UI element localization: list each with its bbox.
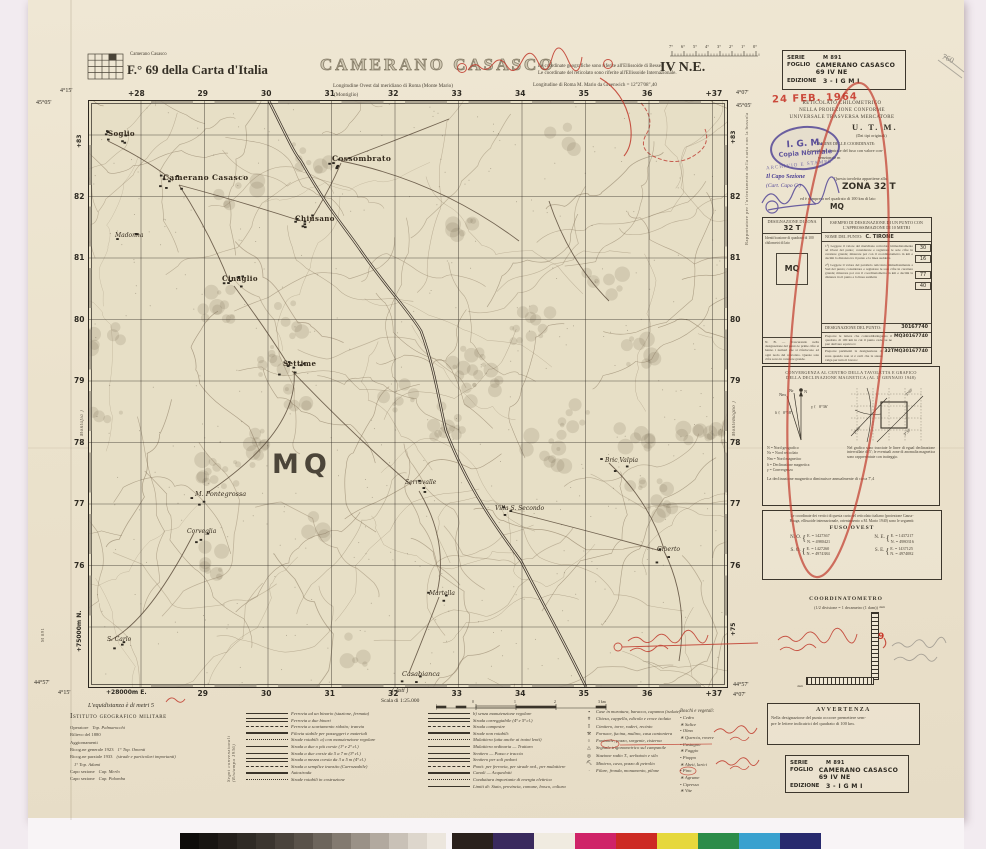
edge-sheet-code: M 891 xyxy=(40,590,45,642)
dam-label-2: dam xyxy=(797,684,803,688)
legend-c-row: ○Fontanile, pozzo, sorgente, cisterna xyxy=(584,738,676,743)
graystep-patch xyxy=(237,833,256,849)
svg-text:3 km: 3 km xyxy=(598,700,606,704)
legend-symbol xyxy=(246,732,288,734)
grid-number-right: 81 xyxy=(730,253,740,262)
legend-c-row: ✝Chiesa, cappella, edicola e croce isola… xyxy=(584,716,676,722)
grid-number-right: 82 xyxy=(730,192,740,201)
protractor-note-rotated: Rapportatore per l'orientamento della ca… xyxy=(744,110,749,245)
fuso-no-e: E. = 1427367 xyxy=(807,533,830,538)
utm-line3: UNIVERSALE TRASVERSA MERCATORE xyxy=(782,115,902,122)
legend-b-row: Sentiero — Passo e traccia xyxy=(428,751,578,756)
grid-number-left: +83 xyxy=(76,135,83,148)
mq-code: MQ xyxy=(830,202,844,211)
legend-symbol xyxy=(428,753,470,754)
legend-symbol: ⛏ xyxy=(584,760,594,766)
corner-bl-lat: 44°57' xyxy=(34,680,49,686)
fuso-so-label: S. O. xyxy=(791,548,801,555)
asti-direction-label: ( Asti ) xyxy=(392,688,408,694)
northing-km: 77 xyxy=(915,271,931,279)
grid-number-left: 82 xyxy=(74,192,84,201)
legend-b-row: Conduttura importante di energia elettri… xyxy=(428,777,578,782)
svg-text:N: N xyxy=(804,389,808,394)
legend-b-row: Strada carreggiabile (4ª e 5ª cl.) xyxy=(428,718,578,723)
designation-table: DESIGNAZIONE DI ZONA 32 T Identificazion… xyxy=(762,217,932,364)
legend-symbol xyxy=(246,766,288,767)
town-label: Serravalle xyxy=(405,479,436,486)
equidistance-note: L'equidistanza è di metri 5 xyxy=(88,702,154,709)
legend-symbol xyxy=(428,786,470,787)
legend-a-row: Autostrada xyxy=(246,770,424,775)
scale-label: Scala di 1:25.000 xyxy=(381,698,419,704)
tree-item: • Olmo xyxy=(680,728,750,735)
legend-symbol xyxy=(428,779,470,780)
edizione-value-2: 3 - I G M I xyxy=(824,781,863,790)
legend-a-row: Strada a mezza corsia da 3 a 5 m (4ª cl.… xyxy=(246,757,424,762)
svg-text:7°: 7° xyxy=(669,44,673,49)
svg-text:2°: 2° xyxy=(729,44,733,49)
utm-abbrev: U. T. M. xyxy=(852,122,898,132)
grid-number-top: 32 xyxy=(388,89,398,98)
svg-text:0: 0 xyxy=(472,700,474,704)
fuso-so-n: N. = 4974384 xyxy=(807,551,830,556)
northing-dam: 40 xyxy=(915,282,931,290)
legend-c-row: ◎Stazione radio T., serbatoio e silo xyxy=(584,753,676,759)
credit-role: Rilievo del 1880 xyxy=(70,732,101,737)
legend-symbol xyxy=(246,713,288,714)
legend-label: Strada campestre xyxy=(473,724,505,729)
legend-b-row: Strada campestre xyxy=(428,724,578,729)
grid-number-bottom: 36 xyxy=(642,689,652,698)
scanned-map-sheet: Camerano Casasco F.° 69 della Carta d'It… xyxy=(0,0,986,849)
legend-label: Autostrada xyxy=(291,770,311,775)
paper-crease xyxy=(70,0,72,820)
credit-line: Ricog.ne generale 19231° Top. Omenti xyxy=(70,746,220,753)
svg-text:4°: 4° xyxy=(705,44,709,49)
point-designation-label: DESIGNAZIONE DEL PUNTO: xyxy=(825,325,881,330)
graystep-patch xyxy=(427,833,446,849)
grid-number-right: +75 xyxy=(730,623,737,636)
legend-column-railways-roads: Ferrovia ad un binario (stazione, fermat… xyxy=(246,711,424,784)
foglio-label-2: FOGLIO xyxy=(786,766,817,782)
convergence-title2: DELLA DECLINAZIONE MAGNETICA (AL 1° GENN… xyxy=(767,375,935,380)
graystep-patch xyxy=(408,833,427,849)
legend-symbol xyxy=(428,718,470,722)
legend-label: Fornace, fucina, mulino, casa cantoniera xyxy=(596,731,672,736)
color-patch xyxy=(493,833,534,849)
graystep-patch xyxy=(351,833,370,849)
graystep-patch xyxy=(218,833,237,849)
grid-number-bottom: 34 xyxy=(515,689,525,698)
grid-number-top: 35 xyxy=(579,89,589,98)
color-patch xyxy=(534,833,575,849)
grid-number-left: 77 xyxy=(74,499,84,508)
legend-symbol xyxy=(428,758,470,762)
fuso-no-label: N. O. xyxy=(790,535,801,542)
foglio-label: FOGLIO xyxy=(783,61,814,77)
legend-a-row: Strade rotabili: a) con manutenzione reg… xyxy=(246,737,424,742)
fuso-box: Le coordinate dei vertici di questa cart… xyxy=(762,510,942,580)
legend-label: Sentiero per soli pedoni xyxy=(473,757,517,762)
credit-name: Cap. Merlo xyxy=(99,769,120,774)
town-label: Cossombrato xyxy=(332,154,391,163)
legend-symbol xyxy=(246,779,288,780)
montiglio-note: (Montiglio) xyxy=(334,92,358,98)
rome-longitude-note: Longitudine di Roma M. Mario da Greenwic… xyxy=(533,83,657,90)
legend-b-row: Strade non rotabili: xyxy=(428,731,578,736)
gamma-value: 0°36' xyxy=(819,404,828,409)
credit-line: Aggiornamenti xyxy=(70,739,220,746)
tree-item: ∗ Agrume xyxy=(680,775,750,782)
legend-symbol xyxy=(428,746,470,747)
legend-rotated-title: Segni convenzionali (Ristampa 1936) xyxy=(226,714,236,782)
square-id-box: MQ xyxy=(776,253,808,285)
map-title: CAMERANO CASASCO xyxy=(320,55,500,75)
tree-item: ∗ Quercia, rovere xyxy=(680,735,750,742)
legend-symbol xyxy=(246,739,288,740)
fuso-ne-label: N. E. xyxy=(874,535,884,542)
legend-b-row: Limiti di: Stato, provincia, comune, bos… xyxy=(428,784,578,789)
edge-left-adjacent-sheet: ( Montafia ) xyxy=(80,380,85,440)
legend-b-row: Mulattiera ordinaria — Tratturo xyxy=(428,744,578,749)
legend-symbol xyxy=(428,772,470,774)
color-patch xyxy=(780,833,821,849)
delta-value: 0°58' xyxy=(783,410,792,415)
color-calibration-bar xyxy=(180,833,821,849)
legend-label: Canali — Acquedotti xyxy=(473,770,512,775)
legend-symbol xyxy=(428,726,470,727)
grid-number-right: +83 xyxy=(730,131,737,144)
legend-a-row: Ferrovia a due binari xyxy=(246,718,424,723)
grid-number-left: 76 xyxy=(74,561,84,570)
trees-list: • Cedro∗ Salice• Olmo∗ Quercia, rovere• … xyxy=(680,715,750,795)
legend-label: Strada a due corsie da 5 a 7 m (3ª cl.) xyxy=(291,751,361,756)
credit-name: 1° Top. Adami xyxy=(74,762,100,767)
legend-b-row: Mulattiera (atta anche ai traini lenti) xyxy=(428,737,578,742)
zona-label: ZONA 32 T xyxy=(842,182,896,192)
easting-km: 30 xyxy=(915,244,931,252)
credit-line: Ricog.ne parziale 1933(strade e particol… xyxy=(70,753,220,760)
legend-label: Conduttura importante di energia elettri… xyxy=(473,777,552,782)
graystep-patch xyxy=(199,833,218,849)
legend-symbol xyxy=(428,739,470,740)
graystep-patch xyxy=(332,833,351,849)
color-patch xyxy=(698,833,739,849)
declination-bottom-note: La declinazione magnetica diminuisce ann… xyxy=(767,476,935,481)
legend-symbol xyxy=(428,766,470,767)
color-patch xyxy=(657,833,698,849)
legend-label: Strada a due o più corsie (1ª e 2ª cl.) xyxy=(291,744,359,749)
legend-b-row: Canali — Acquedotti xyxy=(428,770,578,775)
serie-value: M 891 xyxy=(821,53,842,61)
svg-text:5°: 5° xyxy=(693,44,697,49)
town-label: Corveglia xyxy=(187,528,216,535)
serie-label-2: SERIE xyxy=(786,758,824,766)
north-arrows-diagram: N Nr Nm γ { 0°36' δ { 0°58' xyxy=(767,384,845,446)
legend-c-row: ⚒Fornace, fucina, mulino, casa cantonier… xyxy=(584,731,676,737)
tree-item: ∗ Salice xyxy=(680,722,750,729)
credit-role: Capo sezione xyxy=(70,776,95,781)
capo-sezione-stamp: Il Capo Sezione xyxy=(766,174,805,180)
legend-a-row: Strade rotabili in costruzione xyxy=(246,777,424,782)
legend-label: Ferrovia ad un binario (stazione, fermat… xyxy=(291,711,369,716)
credit-role: Capo sezione xyxy=(70,769,95,774)
edge-right-adjacent-sheet: ( Montemagno ) xyxy=(732,370,737,440)
sheet-reference: F.° 69 della Carta d'Italia xyxy=(127,62,268,78)
legend-label: Strade non rotabili: xyxy=(473,731,509,736)
credit-line: Rilievo del 1880 xyxy=(70,731,220,738)
series-box-bottom: SERIEM 891 FOGLIOCAMERANO CASASCO 69 IV … xyxy=(785,755,909,793)
legend-symbol xyxy=(246,753,288,754)
credit-name: Top. Palmarocchi xyxy=(92,725,125,730)
step1-instructions: 1°) Leggere il valore del meridiano reti… xyxy=(825,244,913,261)
graystep-patch xyxy=(389,833,408,849)
legend-symbol xyxy=(246,772,288,774)
intl-ellipsoid-note: Le coordinate del reticolato sono riferi… xyxy=(538,71,677,78)
rule1-value: MQ30167740 xyxy=(894,334,928,347)
town-label: S. Carlo xyxy=(107,636,131,643)
legend-label: Case in muratura, baracca, capanna (isol… xyxy=(596,709,680,714)
town-label: Soglio xyxy=(108,129,135,138)
legend-b-row: b) senza manutenzione regolare xyxy=(428,711,578,716)
legend-symbol xyxy=(246,726,288,727)
legend-c-row: ▪Case in muratura, baracca, capanna (iso… xyxy=(584,709,676,714)
avvertenza-title: AVVERTENZA xyxy=(771,707,916,713)
grid-number-bottom: 33 xyxy=(452,689,462,698)
edizione-label: EDIZIONE xyxy=(783,76,821,85)
svg-text:δ {: δ { xyxy=(775,410,780,415)
fuso-se-label: S. E. xyxy=(875,548,885,555)
legend-label: Stazione radio T., serbatoio e silo xyxy=(596,753,658,758)
legend-label: Sentiero — Passo e traccia xyxy=(473,751,523,756)
legend-label: Filovia stabile per passeggeri e materia… xyxy=(291,731,367,736)
corner-br-lat: 44°57' xyxy=(733,682,748,688)
grid-number-top: 34 xyxy=(515,89,525,98)
convergence-box: CONVERGENZA AL CENTRO DELLA TAVOLETTA E … xyxy=(762,366,940,506)
declination-label1: 3°00' xyxy=(904,387,914,397)
legend-symbol xyxy=(428,732,470,734)
corner-tr-lat: 45°05' xyxy=(736,103,751,109)
credit-line: 1° Top. Adami xyxy=(70,761,220,768)
point-example-header: ESEMPIO DI DESIGNAZIONE DI UN PUNTO CON … xyxy=(822,218,931,233)
convergence-legend-item: γ = Convergenza xyxy=(767,468,847,474)
tree-item: • Cipresso xyxy=(680,782,750,789)
legend-c-row: ⛏Miniera, cava, pozzo di petrolio xyxy=(584,760,676,766)
legend-symbol: △ xyxy=(584,745,594,751)
corner-br-lon: 4°07' xyxy=(733,692,745,698)
grid-number-top: +37 xyxy=(706,89,723,98)
serie-value-2: M 891 xyxy=(824,758,845,766)
grid-number-left: 80 xyxy=(74,315,84,324)
fuso-ne-n: N. = 4980316 xyxy=(891,539,914,544)
legend-label: Ferrovia a scartamento ridotto; tranvia xyxy=(291,724,364,729)
legend-symbol: ∙ xyxy=(584,768,594,773)
credit-name: 1° Top. Omenti xyxy=(118,747,146,752)
credits-block: OperatoreTop. PalmarocchiRilievo del 188… xyxy=(70,724,220,783)
legend-label: Strada a mezza corsia da 3 a 5 m (4ª cl.… xyxy=(291,757,366,762)
credit-role: Operatore xyxy=(70,725,88,730)
legend-label: Segnale trigonometrico sul campanile xyxy=(596,745,666,750)
grid-number-bottom: +28000m E. xyxy=(106,689,147,696)
square-id-note: Identificazione di quadrato di 100 chilo… xyxy=(765,236,819,245)
legend-symbol: ▪ xyxy=(584,709,594,714)
foglio-value: CAMERANO CASASCO 69 IV NE xyxy=(814,61,905,77)
legend-symbol xyxy=(246,746,288,747)
svg-text:2: 2 xyxy=(554,700,556,704)
coordinatometro-title: COORDINATOMETRO xyxy=(796,596,896,602)
legend-label: Ferrovia a due binari xyxy=(291,718,331,723)
rule2-value: 32TMQ30167740 xyxy=(884,349,928,362)
svg-text:0°: 0° xyxy=(753,44,757,49)
town-label: Casabianca xyxy=(402,670,440,678)
degree-ruler: 7°6°5°4°3°2°1°0° xyxy=(668,42,760,65)
credit-role: Ricog.ne parziale 1933 xyxy=(70,754,112,759)
graystep-patch xyxy=(370,833,389,849)
svg-text:γ {: γ { xyxy=(811,404,816,409)
svg-text:6°: 6° xyxy=(681,44,685,49)
color-patch xyxy=(616,833,657,849)
edizione-value: 3 - I G M I xyxy=(821,76,860,85)
legend-label: Miniera, cava, pozzo di petrolio xyxy=(596,761,655,766)
grid-number-top: 29 xyxy=(198,89,208,98)
tree-item: • Castagno xyxy=(680,742,750,749)
foglio-value-2: CAMERANO CASASCO 69 IV NE xyxy=(817,766,908,782)
legend-a-row: Strada a due o più corsie (1ª e 2ª cl.) xyxy=(246,744,424,749)
coordinatometro-vertical-scale xyxy=(871,612,879,680)
declination-graph: 3°00' 2°30' 3°30' xyxy=(847,384,927,446)
graystep-patch xyxy=(275,833,294,849)
color-patch xyxy=(739,833,780,849)
legend-label: Ponti: per ferrovia, per strade ord., pe… xyxy=(473,764,565,769)
legend-symbol: ○ xyxy=(584,738,594,743)
grid-number-left: 81 xyxy=(74,253,84,262)
credit-role: Aggiornamenti xyxy=(70,740,98,745)
legend-a-row: Strada a due corsie da 5 a 7 m (3ª cl.) xyxy=(246,751,424,756)
graystep-patch xyxy=(294,833,313,849)
grid-number-bottom: +37 xyxy=(706,689,723,698)
legend-c-row: △Segnale trigonometrico sul campanile xyxy=(584,745,676,751)
point-name-label: NOME DEL PUNTO: xyxy=(825,234,862,240)
fuso-se-n: N. = 4974082 xyxy=(890,551,913,556)
town-label: Chiusano xyxy=(295,214,335,223)
legend-trees-block: Boschi e vegetali: • Cedro∗ Salice• Olmo… xyxy=(680,709,750,795)
svg-text:3°: 3° xyxy=(717,44,721,49)
fuso-title: FUSO OVEST xyxy=(768,525,936,531)
legend-label: Mulattiera ordinaria — Tratturo xyxy=(473,744,533,749)
map-terrain xyxy=(89,101,727,687)
credit-name: Cap. Palomba xyxy=(99,776,126,781)
declination-note: Nel grafico sono tracciate le linee di e… xyxy=(847,446,935,474)
legend-label: Strada a semplice transito (Carrozzabile… xyxy=(291,764,367,769)
color-patch xyxy=(452,833,493,849)
grid-number-top: 33 xyxy=(452,89,462,98)
zone-designation-value: 32 T xyxy=(763,224,821,232)
graystep-patch xyxy=(180,833,199,849)
trees-header: Boschi e vegetali: xyxy=(680,709,750,714)
step2-instructions: 2°) Leggere il valore del parallelo reti… xyxy=(825,263,913,280)
bessel-note: Le coordinate geografiche sono riferite … xyxy=(538,64,664,71)
tree-item: • Pioppo xyxy=(680,755,750,762)
legend-b-row: Sentiero per soli pedoni xyxy=(428,757,578,762)
grid-number-bottom: 31 xyxy=(325,689,335,698)
tree-item: • Cedro xyxy=(680,715,750,722)
legend-label: Strada carreggiabile (4ª e 5ª cl.) xyxy=(473,718,533,723)
legend-b-row: Ponti: per ferrovia, per strade ord., pe… xyxy=(428,764,578,769)
corner-bl-lon: 4°15' xyxy=(58,690,70,696)
town-label: Cinaglio xyxy=(222,274,258,283)
legend-a-row: Filovia stabile per passeggeri e materia… xyxy=(246,731,424,736)
tree-item: ∗ Vite xyxy=(680,788,750,795)
map-area: SoglioCossombratoCamerano CasascoChiusan… xyxy=(88,100,728,688)
legend-label: Strade rotabili: a) con manutenzione reg… xyxy=(291,737,375,742)
capo-sezione-stamp2: (Cart. Capo C.) xyxy=(766,183,801,189)
index-sheet-name: Camerano Casasco xyxy=(130,52,167,57)
town-label: Bric Valpia xyxy=(605,457,638,464)
legend-label: Chiesa, cappella, edicola e croce isolat… xyxy=(596,716,671,721)
fuso-no-n: N. = 4980421 xyxy=(807,539,830,544)
tree-item: ∗ Abeti, larici xyxy=(680,762,750,769)
svg-text:1°: 1° xyxy=(741,44,745,49)
rule1-note: Preporre le lettere che contraddistinguo… xyxy=(825,334,892,347)
coordinatometro-horizontal-scale xyxy=(806,677,874,685)
grid-number-top: 31 xyxy=(325,89,335,98)
town-label: Settime xyxy=(283,359,316,368)
point-designation-value: 30167740 xyxy=(901,325,928,330)
point-name-value: C. TIRONE xyxy=(865,234,893,240)
credit-line: Capo sezioneCap. Merlo xyxy=(70,768,220,775)
avvertenza-box: AVVERTENZA Nella designazione del punto … xyxy=(767,703,920,745)
nb-note: N. B. — Trascurando nella designazione d… xyxy=(765,340,819,361)
sheet-index-diagram xyxy=(86,50,126,82)
series-box-top: SERIEM 891 FOGLIOCAMERANO CASASCO 69 IV … xyxy=(782,50,906,90)
town-label: M. Pontegrossa xyxy=(195,490,246,498)
svg-text:Nm: Nm xyxy=(779,392,786,397)
legend-label: Fontanile, pozzo, sorgente, cisterna xyxy=(596,738,662,743)
fuso-intro2: Boaga, ellissoide internazionale, orient… xyxy=(768,519,936,524)
svg-text:1: 1 xyxy=(514,700,516,704)
tree-item: • Pino xyxy=(680,768,750,775)
grid-number-left: +75000m N. xyxy=(76,610,83,652)
town-label: Martella xyxy=(429,590,455,597)
legend-a-row: Strada a semplice transito (Carrozzabile… xyxy=(246,764,424,769)
credit-line: OperatoreTop. Palmarocchi xyxy=(70,724,220,731)
avvertenza-line2: pre le lettere indicatrici del quadrato … xyxy=(771,721,916,727)
corner-tl-lon: 4°15' xyxy=(60,88,72,94)
fuso-ne-e: E. = 1437217 xyxy=(891,533,914,538)
legend-symbol: ✝ xyxy=(584,716,594,722)
grid-square-mq-label: MQ xyxy=(272,449,332,480)
legend-symbol xyxy=(246,758,288,762)
legend-symbol: ▯ xyxy=(584,723,594,729)
credit-role: Ricog.ne generale 1923 xyxy=(70,747,114,752)
utm-line1: RETICOLATO CHILOMETRICO xyxy=(782,101,902,108)
grid-number-right: 77 xyxy=(730,499,740,508)
credit-line: Capo sezioneCap. Palomba xyxy=(70,775,220,782)
legend-label: b) senza manutenzione regolare xyxy=(473,711,531,716)
grid-number-bottom: 35 xyxy=(579,689,589,698)
grid-number-top: 30 xyxy=(261,89,271,98)
quadrato-note: ed è compresa nel quadrato di 100 km di … xyxy=(800,196,875,201)
legend-a-row: Ferrovia ad un binario (stazione, fermat… xyxy=(246,711,424,716)
tavoletta-note: Questa tavoletta appartiene alla xyxy=(834,176,887,181)
credit-name: (strade e particolari importanti) xyxy=(116,754,175,759)
legend-symbol xyxy=(428,713,470,714)
town-label: Villa S. Secondo xyxy=(495,505,544,512)
tree-item: ∗ Faggio xyxy=(680,748,750,755)
grid-number-top: +28 xyxy=(128,89,145,98)
grid-number-bottom: 29 xyxy=(198,689,208,698)
legend-label: Mulattiera (atta anche ai traini lenti) xyxy=(473,737,542,742)
